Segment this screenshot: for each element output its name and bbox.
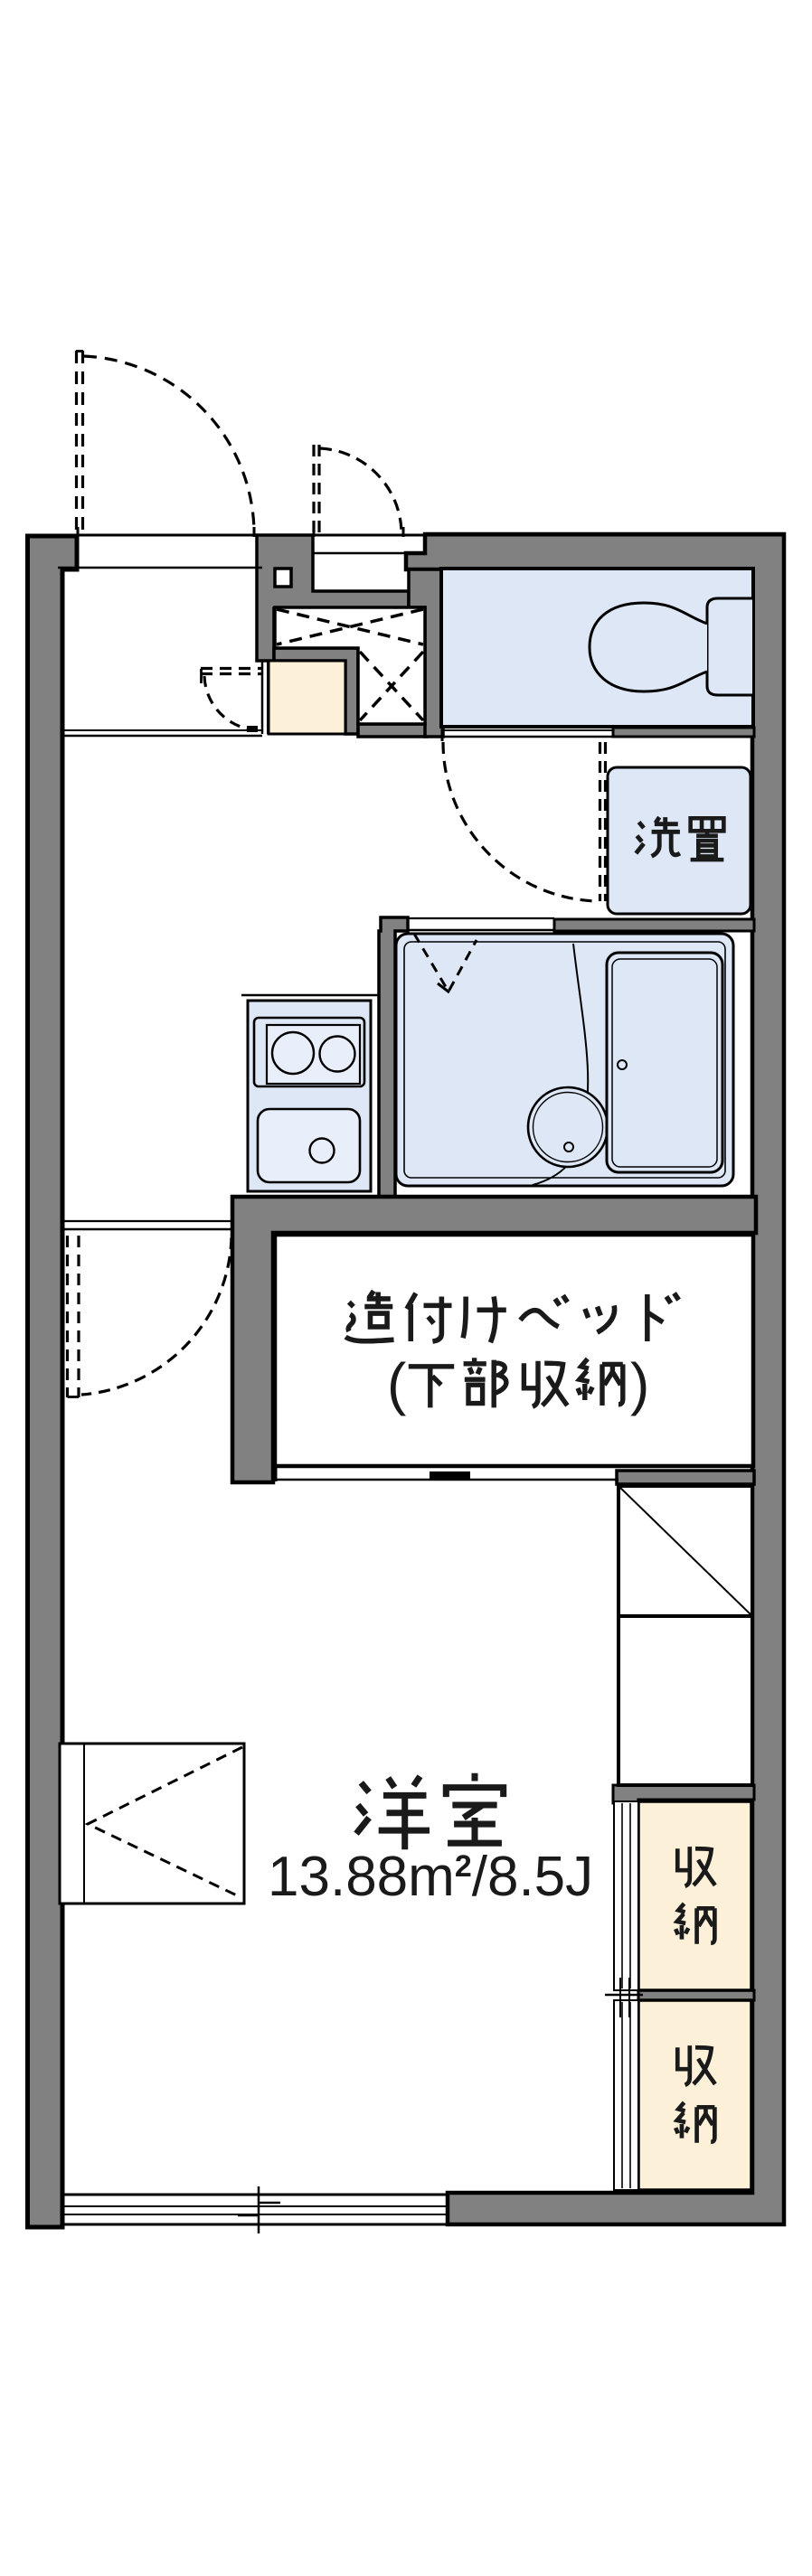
svg-text:13.88m2/8.5J: 13.88m2/8.5J	[268, 1846, 593, 1908]
svg-text:(: (	[387, 1351, 406, 1416]
svg-text:): )	[630, 1351, 649, 1416]
